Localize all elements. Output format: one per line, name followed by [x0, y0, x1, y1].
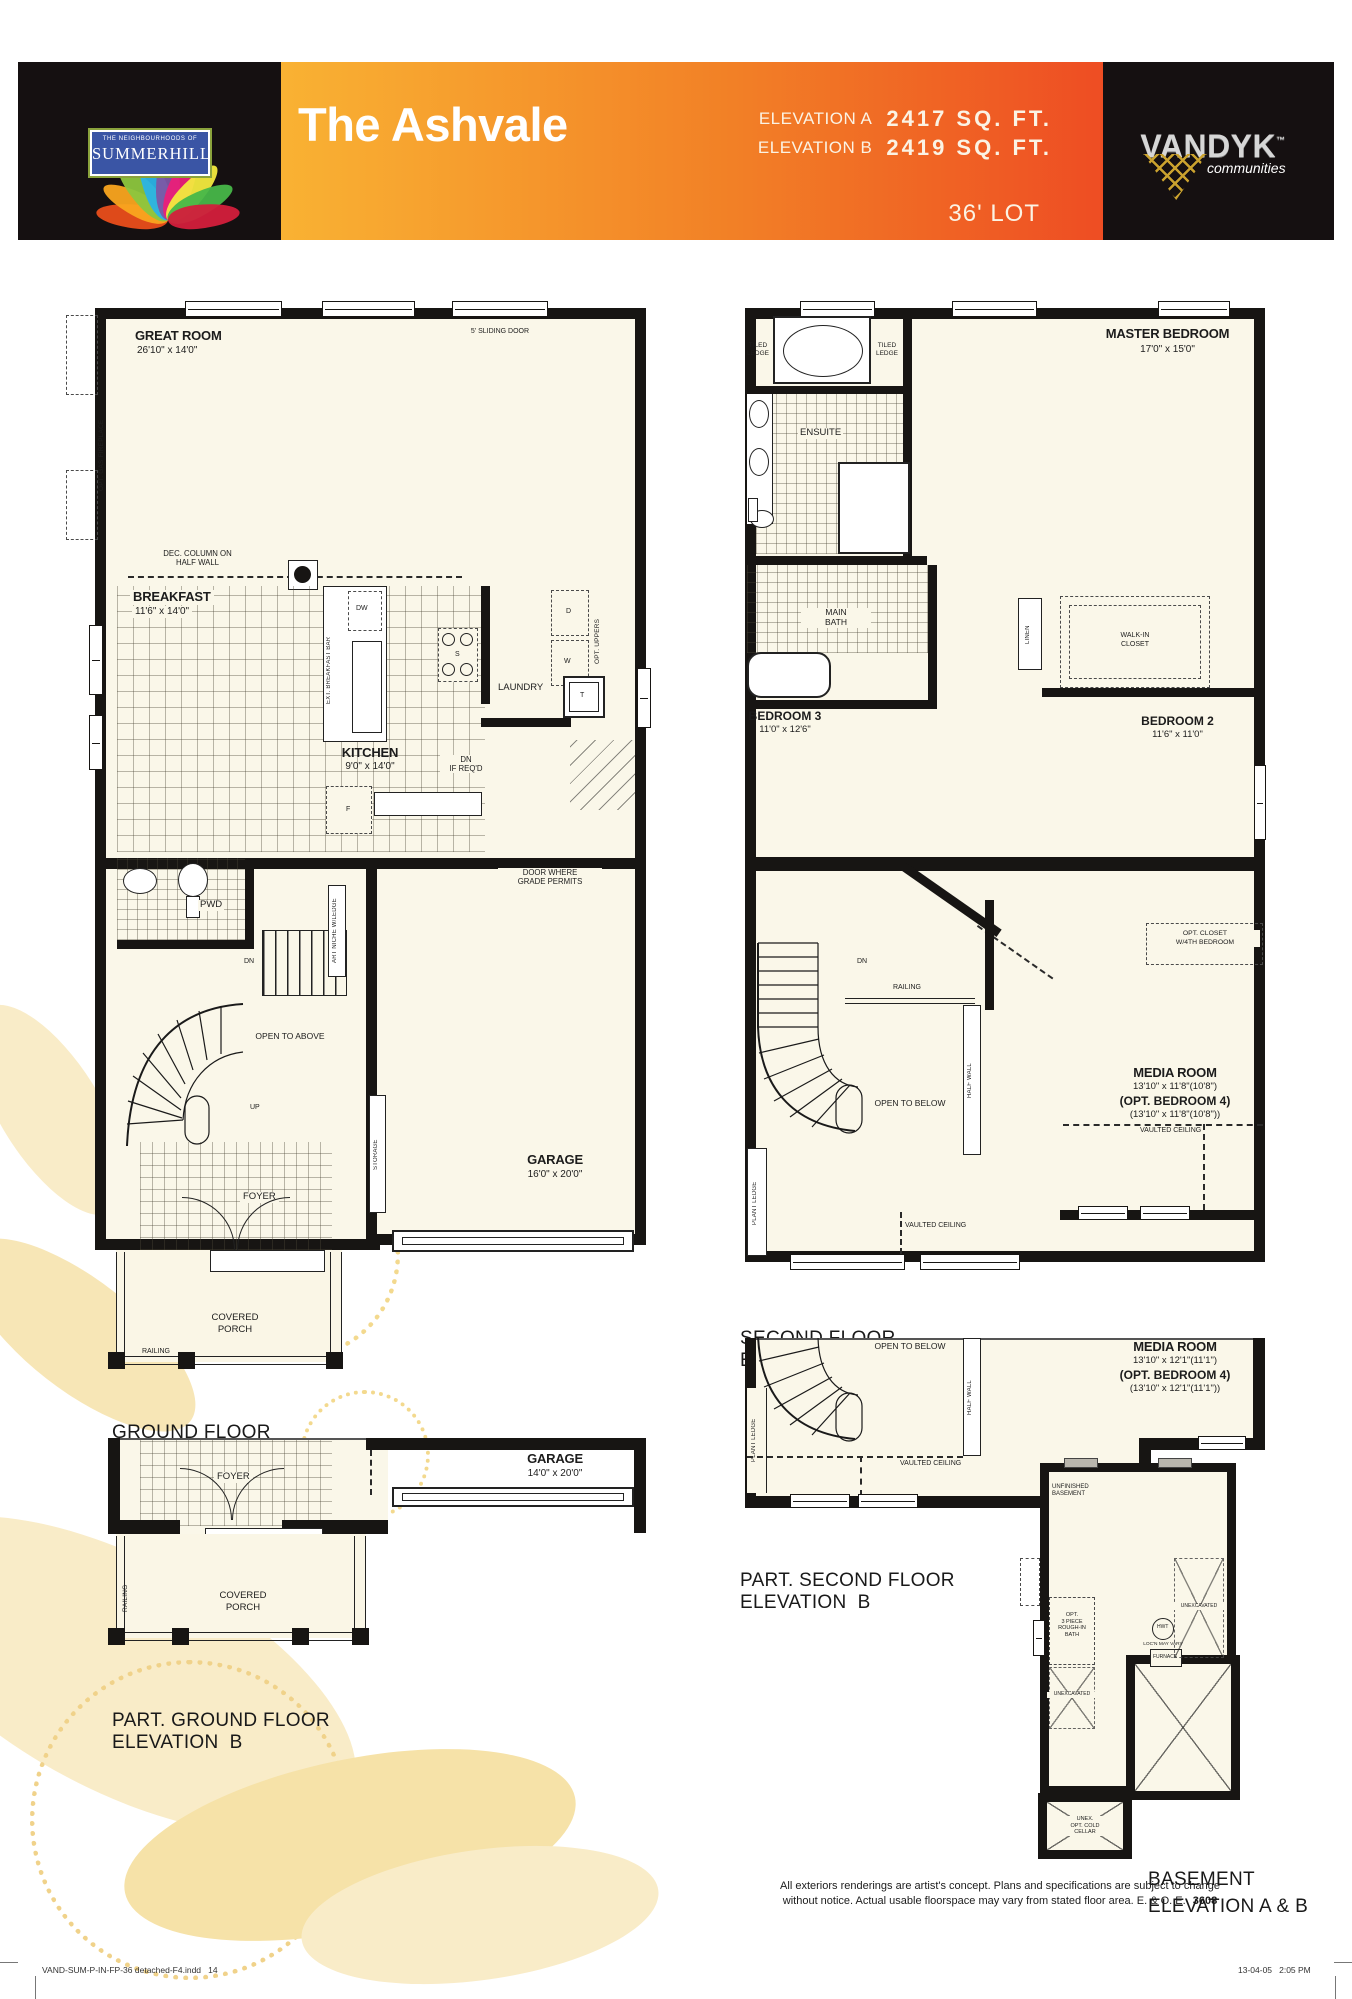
elevation-a-sqft: 2417 SQ. FT.	[886, 106, 1052, 131]
unexcavated-label: UNEXCAVATED	[1172, 1604, 1226, 1610]
elevation-b-sqft: 2419 SQ. FT.	[886, 135, 1052, 160]
unfinished-basement-label: UNFINISHEDBASEMENT	[1052, 1484, 1089, 1498]
summerhill-logo-name: SUMMERHILL	[92, 144, 208, 164]
basement-window	[1158, 1458, 1192, 1468]
brochure-page: THE NEIGHBOURHOODS OF SUMMERHILL The Ash…	[0, 0, 1352, 1999]
summerhill-logo-box: THE NEIGHBOURHOODS OF SUMMERHILL	[90, 130, 210, 176]
basement-plan: UNFINISHEDBASEMENT OPT.3 PIECE ROUGH-INB…	[0, 0, 1352, 1999]
cold-cellar-label: UNEX.OPT. COLDCELLAR	[1050, 1816, 1120, 1836]
basement-caption: BASEMENTELEVATION A & B	[1148, 1812, 1308, 1974]
vandyk-tm: ™	[1276, 135, 1286, 145]
elevation-a-label: ELEVATION A	[759, 109, 873, 128]
basement-window	[1064, 1458, 1098, 1468]
summerhill-logo-tagline: THE NEIGHBOURHOODS OF	[92, 136, 208, 142]
basement-garage-unexcavated	[1126, 1655, 1240, 1800]
hwt-label: HWT	[1157, 1625, 1168, 1631]
unexcavated-label: UNEXCAVATED	[1047, 1692, 1097, 1698]
vandyk-diamond-icon	[1143, 154, 1207, 200]
vandyk-tagline: communities	[1207, 160, 1286, 176]
elevation-a-row: ELEVATION A2417 SQ. FT.	[600, 106, 1052, 132]
opt-bath-label: OPT.3 PIECE ROUGH-INBATH	[1049, 1612, 1095, 1638]
elevation-b-row: ELEVATION B2419 SQ. FT.	[600, 135, 1052, 161]
model-title: The Ashvale	[298, 98, 568, 152]
unexcavated-left	[1049, 1667, 1095, 1729]
window	[1033, 1620, 1045, 1656]
summerhill-logo: THE NEIGHBOURHOODS OF SUMMERHILL	[18, 62, 281, 240]
outside-dashed	[1020, 1558, 1040, 1606]
lot-size: 36' LOT	[600, 200, 1040, 228]
vandyk-logo: VANDYK™ communities	[1103, 62, 1334, 240]
elevation-b-label: ELEVATION B	[758, 138, 872, 157]
